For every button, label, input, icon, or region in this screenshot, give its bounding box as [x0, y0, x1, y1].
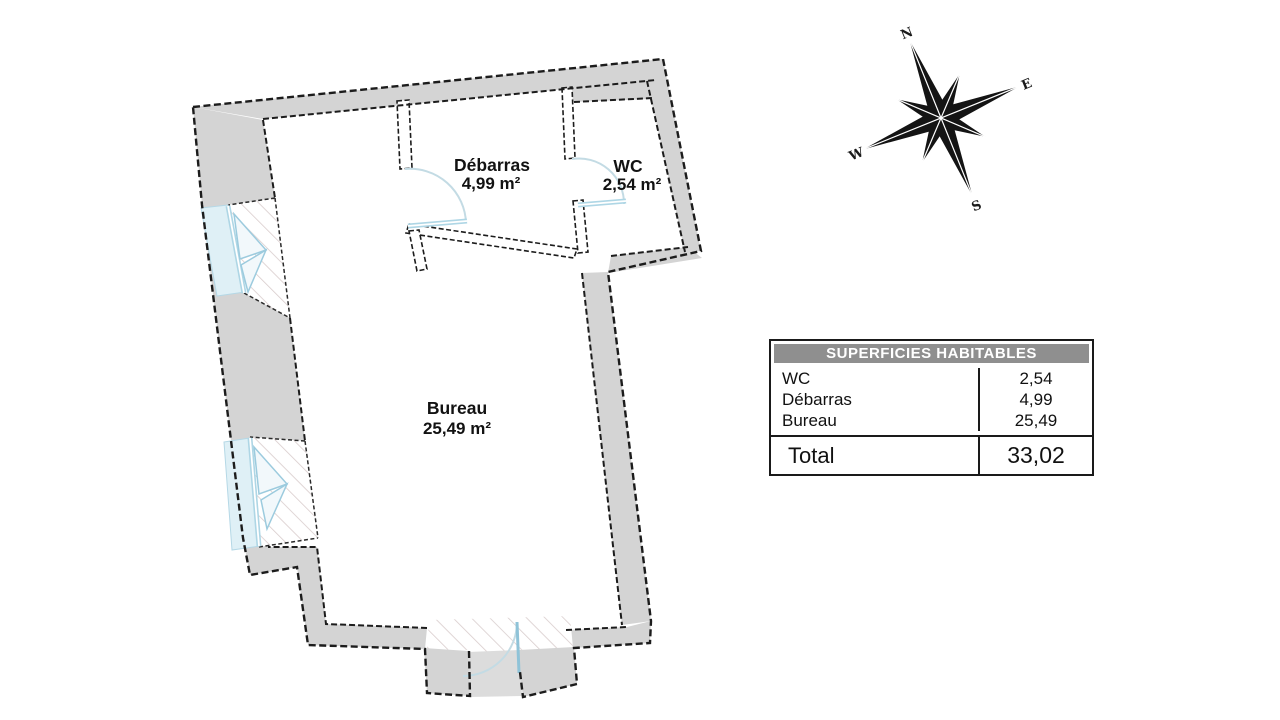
table-row: WC 2,54: [771, 368, 1092, 389]
table-body: WC 2,54 Débarras 4,99 Bureau 25,49: [771, 366, 1092, 435]
entry-recess: [424, 616, 577, 697]
row-value: 25,49: [978, 410, 1092, 431]
table-header: SUPERFICIES HABITABLES: [774, 344, 1089, 363]
room-label-wc: WC: [613, 156, 643, 176]
row-label: WC: [771, 368, 978, 389]
room-label-bureau: Bureau: [427, 398, 487, 418]
compass-rose-icon: N E S W: [811, 0, 1069, 251]
compass-south-label: S: [970, 198, 984, 215]
surface-areas-table: SUPERFICIES HABITABLES WC 2,54 Débarras …: [769, 339, 1094, 476]
exterior-walls: [193, 59, 702, 649]
row-label: Débarras: [771, 389, 978, 410]
door-debarras: [405, 169, 467, 226]
room-area-bureau: 25,49 m²: [423, 419, 491, 438]
table-total-row: Total 33,02: [771, 435, 1092, 474]
row-value: 4,99: [978, 389, 1092, 410]
table-row: Débarras 4,99: [771, 389, 1092, 410]
room-area-wc: 2,54 m²: [603, 175, 662, 194]
floor-plan-page: Débarras 4,99 m² WC 2,54 m² Bureau 25,49…: [0, 0, 1280, 720]
total-value: 33,02: [978, 437, 1092, 474]
compass-east-label: E: [1019, 76, 1034, 94]
compass-north-label: N: [899, 25, 916, 43]
total-label: Total: [771, 437, 978, 474]
compass-west-label: W: [846, 145, 866, 165]
table-row: Bureau 25,49: [771, 410, 1092, 431]
room-area-debarras: 4,99 m²: [462, 174, 521, 193]
row-value: 2,54: [978, 368, 1092, 389]
room-label-debarras: Débarras: [454, 155, 530, 175]
row-label: Bureau: [771, 410, 978, 431]
